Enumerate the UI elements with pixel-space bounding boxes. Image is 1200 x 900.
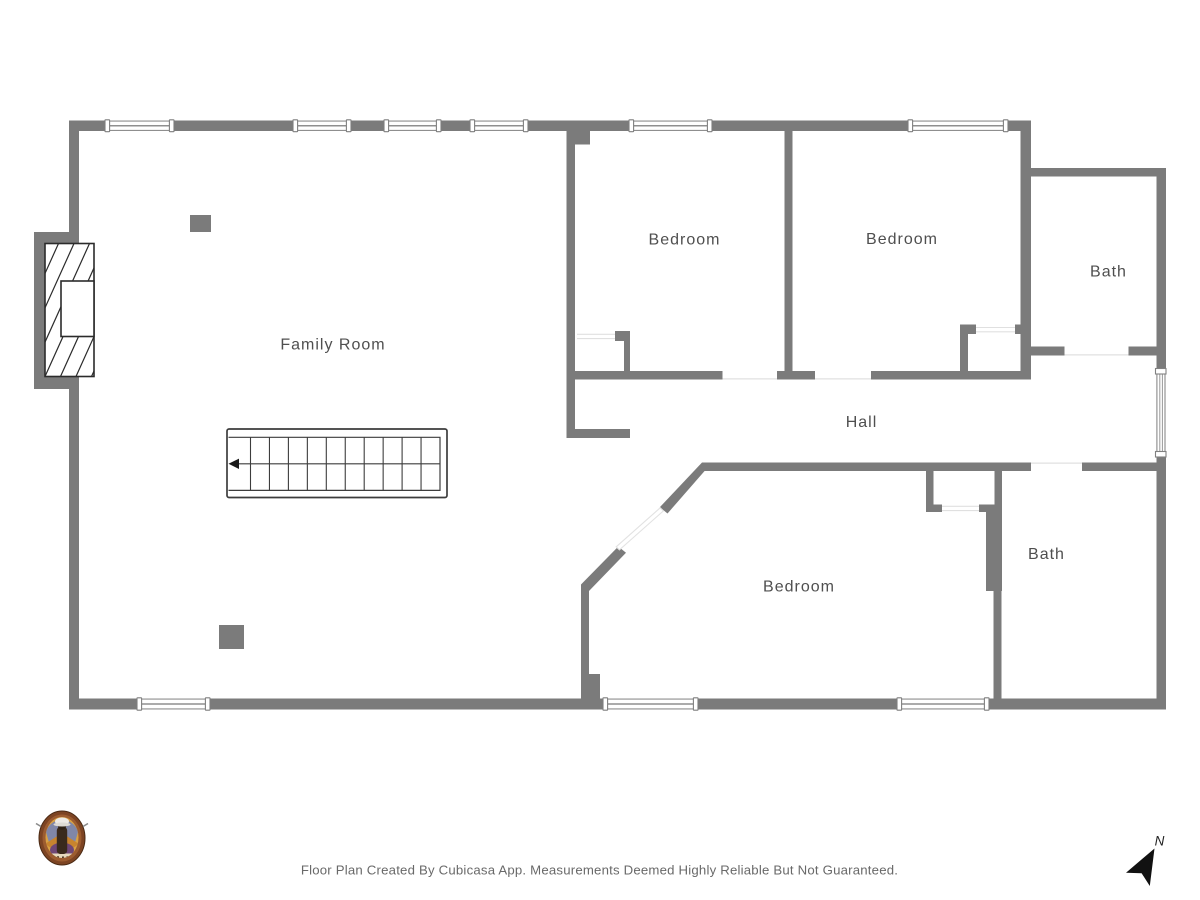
svg-text:Bedroom: Bedroom xyxy=(763,579,835,596)
svg-text:Bedroom: Bedroom xyxy=(866,231,938,248)
svg-text:N: N xyxy=(1155,834,1165,849)
svg-text:Floor Plan Created By Cubicasa: Floor Plan Created By Cubicasa App. Meas… xyxy=(301,863,898,878)
svg-text:Bath: Bath xyxy=(1090,264,1127,281)
svg-text:Family Room: Family Room xyxy=(280,337,385,354)
svg-text:Bedroom: Bedroom xyxy=(649,232,721,249)
svg-text:Hall: Hall xyxy=(846,414,878,431)
svg-text:Bath: Bath xyxy=(1028,546,1065,563)
